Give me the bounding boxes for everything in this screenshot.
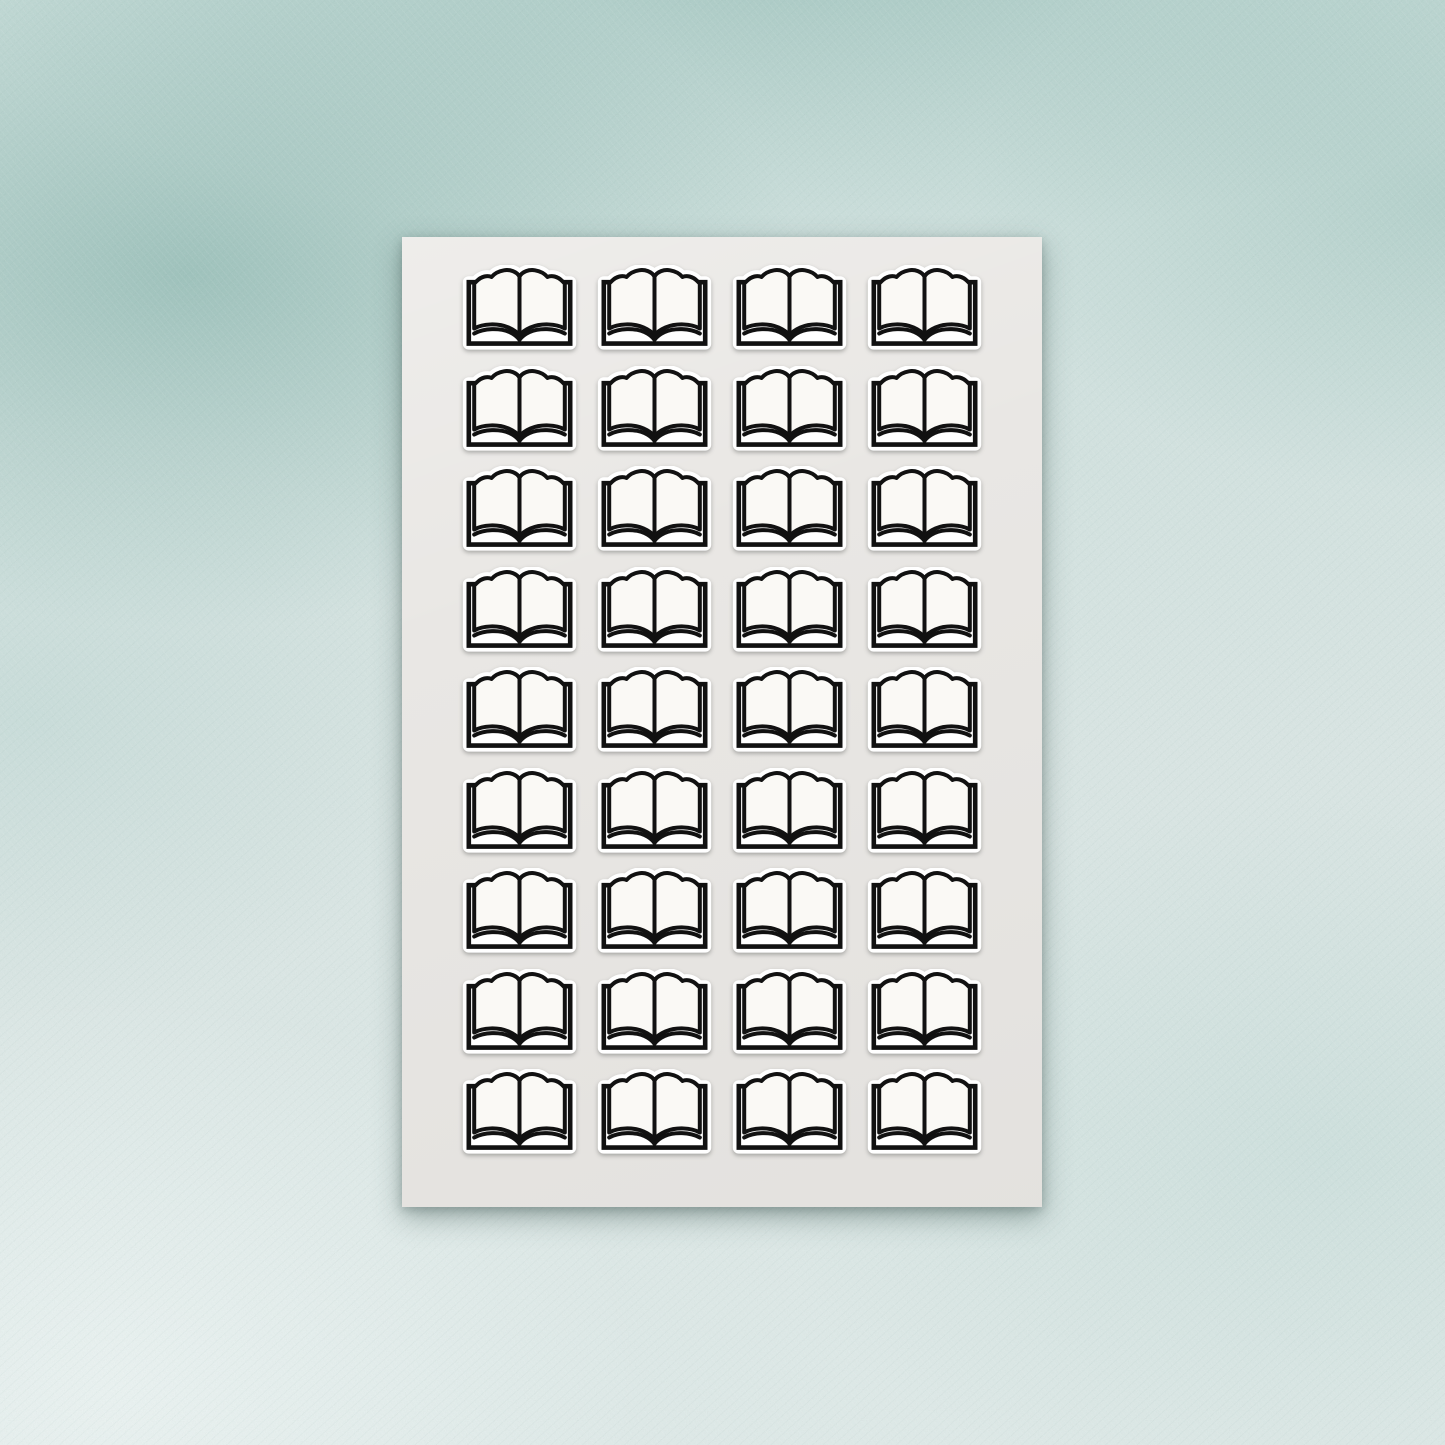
open-book-icon <box>730 667 849 753</box>
book-right-page <box>925 1074 970 1139</box>
book-sticker <box>730 1069 849 1155</box>
book-right-page <box>790 270 835 335</box>
open-book-icon <box>460 768 579 854</box>
book-left-page <box>744 1074 789 1139</box>
book-right-page <box>655 572 700 637</box>
book-sticker <box>595 567 714 653</box>
book-sticker <box>460 667 579 753</box>
book-sticker <box>865 768 984 854</box>
open-book-icon <box>460 969 579 1055</box>
book-left-page <box>474 270 519 335</box>
book-left-page <box>609 873 654 938</box>
open-book-icon <box>595 567 714 653</box>
book-sticker <box>865 1069 984 1155</box>
book-right-page <box>520 270 565 335</box>
book-sticker <box>460 366 579 452</box>
open-book-icon <box>865 466 984 552</box>
open-book-icon <box>460 567 579 653</box>
book-left-page <box>879 270 924 335</box>
book-left-page <box>744 572 789 637</box>
open-book-icon <box>460 868 579 954</box>
book-left-page <box>879 672 924 737</box>
book-left-page <box>744 270 789 335</box>
book-right-page <box>655 270 700 335</box>
book-sticker <box>730 466 849 552</box>
book-sticker <box>730 667 849 753</box>
sticker-sheet <box>402 237 1042 1207</box>
sticker-grid <box>402 237 1042 1155</box>
book-left-page <box>609 572 654 637</box>
open-book-icon <box>730 1069 849 1155</box>
open-book-icon <box>460 366 579 452</box>
open-book-icon <box>865 667 984 753</box>
book-sticker <box>460 969 579 1055</box>
open-book-icon <box>595 768 714 854</box>
book-sticker <box>730 366 849 452</box>
book-sticker <box>595 768 714 854</box>
book-left-page <box>744 471 789 536</box>
open-book-icon <box>730 969 849 1055</box>
open-book-icon <box>865 366 984 452</box>
book-sticker <box>460 1069 579 1155</box>
book-left-page <box>879 371 924 436</box>
book-sticker <box>595 1069 714 1155</box>
book-left-page <box>609 471 654 536</box>
book-right-page <box>520 873 565 938</box>
book-sticker <box>865 868 984 954</box>
open-book-icon <box>460 1069 579 1155</box>
book-sticker <box>460 265 579 351</box>
book-right-page <box>655 371 700 436</box>
book-left-page <box>609 1074 654 1139</box>
open-book-icon <box>865 1069 984 1155</box>
open-book-icon <box>730 265 849 351</box>
book-sticker <box>595 265 714 351</box>
book-left-page <box>744 773 789 838</box>
book-right-page <box>925 873 970 938</box>
book-sticker <box>460 868 579 954</box>
book-left-page <box>474 974 519 1039</box>
book-right-page <box>790 773 835 838</box>
book-left-page <box>879 572 924 637</box>
book-left-page <box>879 471 924 536</box>
book-right-page <box>790 1074 835 1139</box>
book-left-page <box>609 974 654 1039</box>
book-right-page <box>790 572 835 637</box>
book-sticker <box>595 667 714 753</box>
book-sticker <box>865 265 984 351</box>
book-sticker <box>460 466 579 552</box>
book-right-page <box>520 773 565 838</box>
book-left-page <box>609 270 654 335</box>
book-sticker <box>460 768 579 854</box>
open-book-icon <box>865 969 984 1055</box>
open-book-icon <box>595 667 714 753</box>
book-sticker <box>865 667 984 753</box>
book-right-page <box>790 471 835 536</box>
open-book-icon <box>595 969 714 1055</box>
book-right-page <box>655 773 700 838</box>
book-sticker <box>865 366 984 452</box>
open-book-icon <box>460 466 579 552</box>
book-right-page <box>655 1074 700 1139</box>
book-sticker <box>595 366 714 452</box>
open-book-icon <box>730 768 849 854</box>
open-book-icon <box>730 366 849 452</box>
watercolor-background <box>0 0 1445 1445</box>
book-sticker <box>730 567 849 653</box>
book-left-page <box>474 371 519 436</box>
book-sticker <box>730 868 849 954</box>
book-left-page <box>609 371 654 436</box>
book-right-page <box>790 371 835 436</box>
open-book-icon <box>865 567 984 653</box>
book-left-page <box>879 873 924 938</box>
open-book-icon <box>595 265 714 351</box>
open-book-icon <box>730 567 849 653</box>
open-book-icon <box>595 868 714 954</box>
open-book-icon <box>730 868 849 954</box>
book-left-page <box>879 773 924 838</box>
book-right-page <box>655 873 700 938</box>
book-right-page <box>925 471 970 536</box>
book-right-page <box>520 974 565 1039</box>
book-sticker <box>730 768 849 854</box>
book-left-page <box>879 974 924 1039</box>
book-left-page <box>474 873 519 938</box>
book-right-page <box>790 873 835 938</box>
book-sticker <box>865 567 984 653</box>
book-left-page <box>744 672 789 737</box>
book-left-page <box>609 672 654 737</box>
book-left-page <box>474 471 519 536</box>
book-left-page <box>744 974 789 1039</box>
book-left-page <box>474 672 519 737</box>
book-right-page <box>925 672 970 737</box>
book-sticker <box>460 567 579 653</box>
open-book-icon <box>595 466 714 552</box>
book-sticker <box>595 868 714 954</box>
open-book-icon <box>595 366 714 452</box>
book-sticker <box>865 466 984 552</box>
book-sticker <box>595 466 714 552</box>
book-left-page <box>609 773 654 838</box>
book-sticker <box>595 969 714 1055</box>
book-right-page <box>520 1074 565 1139</box>
book-right-page <box>790 672 835 737</box>
book-sticker <box>865 969 984 1055</box>
book-left-page <box>744 371 789 436</box>
book-right-page <box>655 974 700 1039</box>
book-right-page <box>655 672 700 737</box>
open-book-icon <box>460 667 579 753</box>
book-sticker <box>730 969 849 1055</box>
book-sticker <box>730 265 849 351</box>
book-right-page <box>790 974 835 1039</box>
book-right-page <box>520 471 565 536</box>
open-book-icon <box>595 1069 714 1155</box>
book-left-page <box>744 873 789 938</box>
open-book-icon <box>865 768 984 854</box>
book-right-page <box>520 371 565 436</box>
book-right-page <box>925 371 970 436</box>
book-right-page <box>655 471 700 536</box>
open-book-icon <box>730 466 849 552</box>
open-book-icon <box>865 868 984 954</box>
book-left-page <box>879 1074 924 1139</box>
book-right-page <box>925 270 970 335</box>
open-book-icon <box>865 265 984 351</box>
book-right-page <box>925 773 970 838</box>
book-right-page <box>925 572 970 637</box>
book-right-page <box>925 974 970 1039</box>
book-left-page <box>474 1074 519 1139</box>
book-right-page <box>520 572 565 637</box>
book-right-page <box>520 672 565 737</box>
book-left-page <box>474 572 519 637</box>
open-book-icon <box>460 265 579 351</box>
book-left-page <box>474 773 519 838</box>
